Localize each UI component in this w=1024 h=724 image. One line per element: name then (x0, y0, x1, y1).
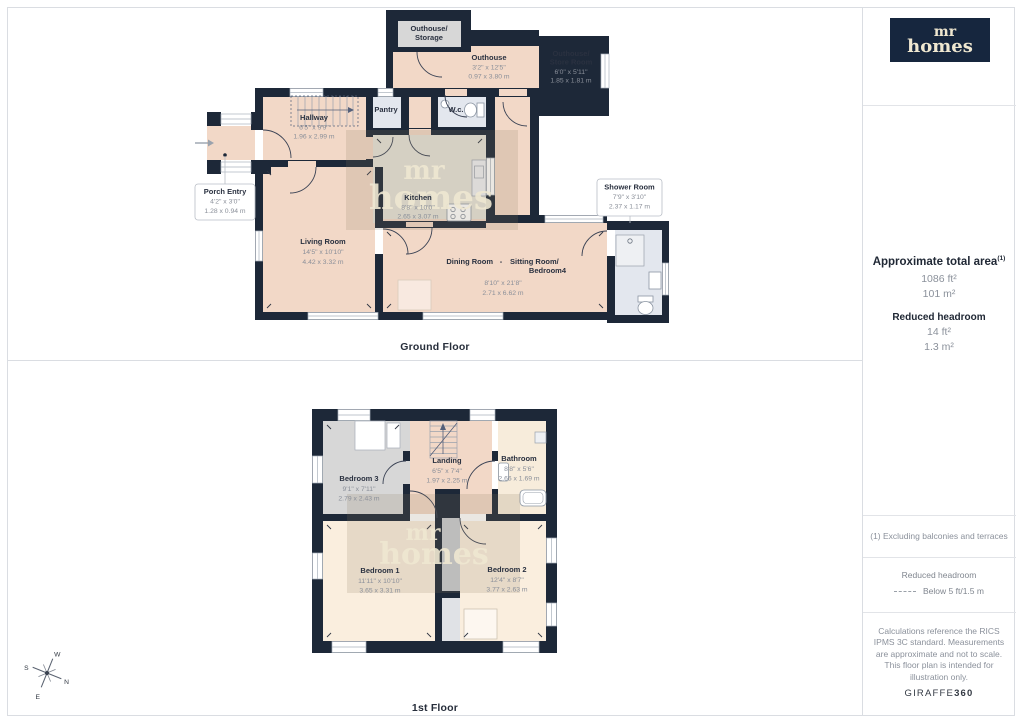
room-porch-floor (207, 126, 255, 160)
svg-text:3'2" x 12'5": 3'2" x 12'5" (472, 65, 506, 72)
room-label-bedroom3: Bedroom 3 (339, 474, 378, 483)
legend-row: Below 5 ft/1.5 m (862, 586, 1016, 596)
svg-text:Bedroom4: Bedroom4 (529, 266, 567, 275)
svg-text:4'2" x 3'0": 4'2" x 3'0" (210, 199, 240, 206)
svg-text:6'5" x 7'4": 6'5" x 7'4" (432, 468, 462, 475)
area-summary: Approximate total area(1) 1086 ft² 101 m… (862, 255, 1016, 355)
rug-bedroom2 (464, 609, 497, 639)
sidebar-section-divider (863, 612, 1016, 613)
footnote-marker: (1) (997, 255, 1005, 262)
svg-text:11'11" x 10'10": 11'11" x 10'10" (358, 578, 402, 585)
room-label-bedroom1: Bedroom 1 (360, 566, 399, 575)
compass-icon: N E S W (14, 640, 80, 706)
flue (442, 598, 460, 641)
svg-text:8'8" x 10'0": 8'8" x 10'0" (401, 205, 435, 212)
room-label-wc: W.c. (448, 105, 463, 114)
balconies-footnote: (1) Excluding balconies and terraces (862, 531, 1016, 541)
svg-text:2.37 x 1.17 m: 2.37 x 1.17 m (609, 204, 651, 211)
legend-title: Reduced headroom (862, 570, 1016, 580)
toilet-icon-wc (465, 103, 485, 117)
ground-floor-label: Ground Floor (8, 341, 862, 353)
total-area-ft: 1086 ft² (862, 272, 1016, 287)
svg-text:2.65 x 3.07 m: 2.65 x 3.07 m (397, 214, 439, 221)
svg-text:Store Room: Store Room (550, 58, 593, 67)
room-label-bathroom: Bathroom (501, 454, 537, 463)
compass-w-label: W (54, 652, 61, 659)
sidebar-section-divider (863, 105, 1016, 106)
first-floor-label: 1st Floor (8, 702, 862, 714)
dashed-line-sample (894, 591, 916, 592)
svg-text:0.97 x 3.80 m: 0.97 x 3.80 m (468, 74, 510, 81)
svg-text:12'4" x 8'7": 12'4" x 8'7" (490, 577, 524, 584)
legend-value: Below 5 ft/1.5 m (923, 586, 984, 596)
compass-s-label: S (24, 665, 29, 672)
room-label-living: Living Room (300, 237, 346, 246)
sidebar-section-divider (863, 557, 1016, 558)
svg-text:6'5" x 9'9": 6'5" x 9'9" (299, 125, 329, 132)
sidebar-section-divider (863, 515, 1016, 516)
svg-text:8'8" x 5'6": 8'8" x 5'6" (504, 466, 534, 473)
svg-text:6'0" x 5'11": 6'0" x 5'11" (555, 69, 589, 76)
first-floor-plan: mr homes Bedroom 3 9'1" x 7'11" 2.79 x 2… (310, 406, 560, 656)
svg-text:8'10" x 21'8": 8'10" x 21'8" (484, 280, 522, 287)
svg-text:2.79 x 2.43 m: 2.79 x 2.43 m (338, 496, 380, 503)
reduced-headroom-ft: 14 ft² (862, 325, 1016, 340)
disclaimer-text: Calculations reference the RICS IPMS 3C … (869, 626, 1009, 683)
svg-text:1.96 x 2.99 m: 1.96 x 2.99 m (293, 134, 335, 141)
total-area-title: Approximate total area(1) (862, 255, 1016, 268)
svg-text:9'1" x 7'11": 9'1" x 7'11" (343, 486, 377, 493)
giraffe360-brand: GIRAFFE360 (862, 688, 1016, 699)
wardrobe-icon (355, 421, 400, 450)
room-label-pantry: Pantry (374, 105, 398, 114)
room-outhouse-floor (393, 52, 471, 88)
room-label-shower: Shower Room (604, 183, 655, 192)
svg-text:1.85 x 1.81 m: 1.85 x 1.81 m (550, 78, 592, 85)
svg-text:Storage: Storage (415, 33, 443, 42)
rug-dining (398, 280, 431, 310)
sidebar-divider (862, 7, 863, 716)
floors-divider (7, 360, 862, 361)
svg-text:7'9" x 3'10": 7'9" x 3'10" (613, 194, 647, 201)
reduced-headroom-title: Reduced headroom (862, 312, 1016, 323)
ground-floor-plan: mr homes Outhouse/ Storage Outhouse 3'2"… (193, 8, 675, 338)
shower-callout: Shower Room 7'9" x 3'10" 2.37 x 1.17 m (597, 179, 662, 223)
reduced-headroom-m: 1.3 m² (862, 340, 1016, 355)
room-label-hallway: Hallway (300, 113, 329, 122)
compass-e-label: E (35, 694, 40, 701)
total-area-m: 101 m² (862, 287, 1016, 302)
mr-homes-logo: mr homes (890, 18, 990, 62)
svg-text:14'5" x 10'10": 14'5" x 10'10" (302, 249, 344, 256)
room-label-kitchen: Kitchen (404, 193, 432, 202)
room-label-landing: Landing (432, 456, 462, 465)
shower-icon (616, 235, 644, 266)
sink-icon-shower (649, 272, 661, 289)
svg-text:2.66 x 1.69 m: 2.66 x 1.69 m (498, 476, 540, 483)
room-label-outhouse: Outhouse (472, 53, 507, 62)
compass-n-label: N (64, 679, 69, 686)
svg-text:3.77 x 2.63 m: 3.77 x 2.63 m (486, 587, 528, 594)
room-label-outhouse-storage: Outhouse/ (410, 24, 448, 33)
svg-text:3.65 x 3.31 m: 3.65 x 3.31 m (359, 588, 401, 595)
svg-text:1.28 x 0.94 m: 1.28 x 0.94 m (204, 208, 246, 215)
logo-line2: homes (907, 38, 973, 55)
toilet-icon-shower (638, 296, 653, 315)
svg-text:Sitting Room/: Sitting Room/ (510, 257, 560, 266)
svg-text:4.42 x 3.32 m: 4.42 x 3.32 m (302, 259, 344, 266)
room-label-bedroom2: Bedroom 2 (487, 565, 526, 574)
counter-icon-bathroom (535, 432, 546, 443)
room-label-porch: Porch Entry (204, 187, 247, 196)
room-label-dining: Dining Room (446, 257, 493, 266)
svg-text:2.71 x 6.62 m: 2.71 x 6.62 m (482, 290, 524, 297)
svg-text:1.97 x 2.25 m: 1.97 x 2.25 m (426, 478, 468, 485)
